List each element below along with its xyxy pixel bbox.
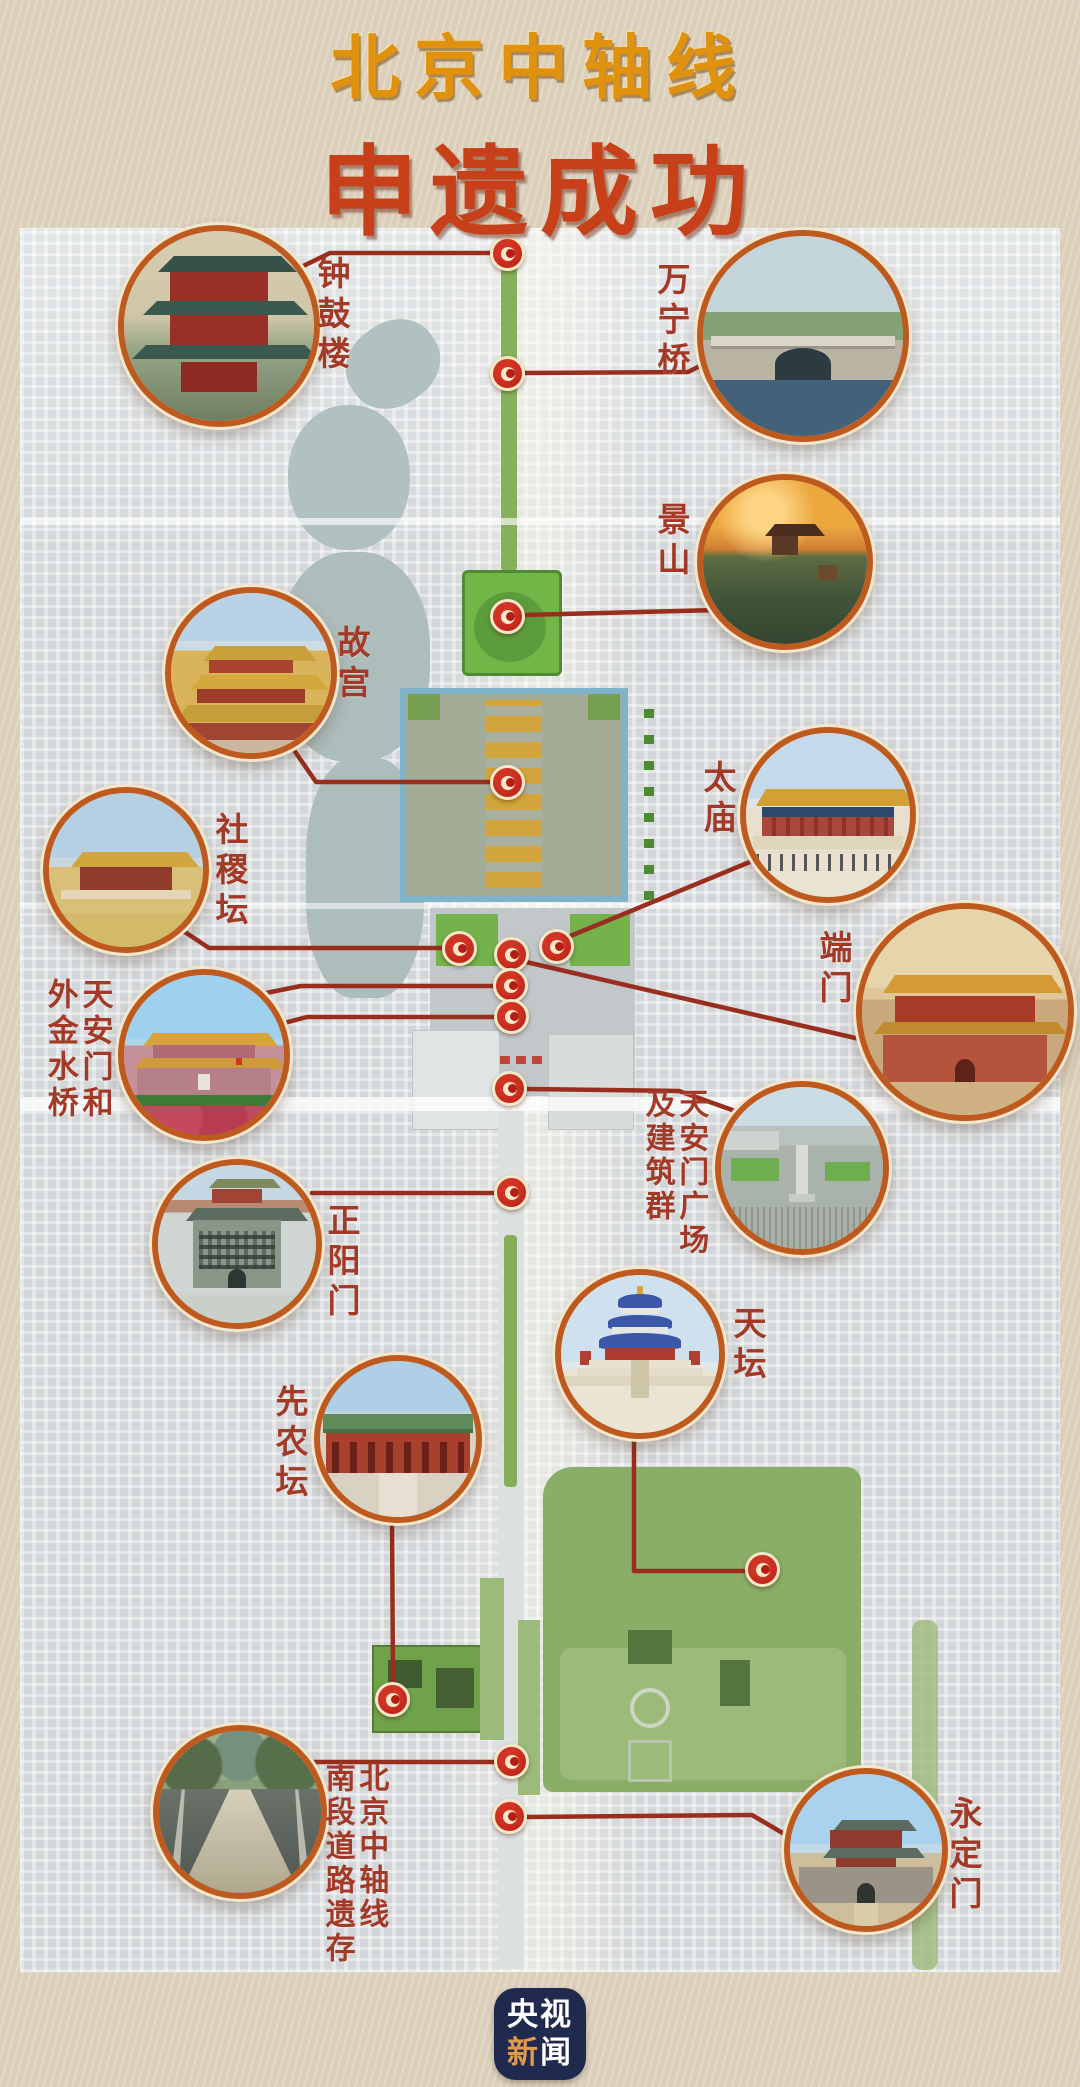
logo-char-xin: 新 — [507, 2035, 540, 2071]
photo-callout-nanduan — [153, 1725, 327, 1899]
photo-detail — [212, 1189, 263, 1203]
photo-detail — [132, 345, 320, 359]
label-jingshan: 景山 — [652, 502, 689, 622]
photo-guangchang — [721, 1087, 883, 1249]
photo-detail — [124, 1106, 284, 1135]
photo-callout-zhengyangmen — [152, 1159, 322, 1329]
photo-detail — [721, 1207, 883, 1249]
label-gugong: 故宫 — [332, 625, 369, 745]
photo-detail — [143, 1033, 278, 1046]
photo-detail — [789, 1194, 815, 1202]
photo-detail — [883, 975, 1064, 993]
photo-detail — [332, 1442, 463, 1473]
photo-detail — [209, 660, 292, 673]
photo-detail — [209, 1179, 282, 1188]
photo-callout-wanningqiao — [697, 230, 909, 442]
poster-title: 北京中轴线 — [0, 12, 1080, 113]
label-tiananmen-waijinshuiqiao: 天安门和 外金水桥 — [42, 978, 111, 1153]
photo-detail — [818, 565, 838, 580]
photo-detail — [756, 854, 900, 870]
map-marker-xiannongtan — [375, 1682, 410, 1717]
photo-jingshan — [703, 480, 867, 644]
photo-detail — [874, 1022, 1067, 1034]
connector-xiannongtan — [392, 1513, 393, 1683]
photo-detail — [833, 1820, 918, 1831]
photo-detail — [631, 1360, 650, 1398]
map-marker-wanningqiao — [490, 356, 525, 391]
photo-detail — [825, 1162, 870, 1181]
photo-gugong — [171, 593, 331, 753]
photo-detail — [198, 1074, 211, 1090]
label-wanningqiao: 万宁桥 — [652, 262, 689, 422]
photo-callout-tiantan — [555, 1269, 725, 1439]
photo-xiannongtan — [320, 1361, 476, 1517]
map-marker-guangchang — [492, 1071, 527, 1106]
photo-detail — [80, 867, 172, 890]
photo-callout-tiananmen-guangchang — [715, 1081, 889, 1255]
photo-zhonggulou — [124, 231, 314, 421]
photo-yongdingmen — [790, 1774, 942, 1926]
label-shejitan: 社稷坛 — [210, 812, 247, 972]
photo-callout-zhonggulou — [118, 225, 320, 427]
photo-detail — [379, 1473, 416, 1517]
title-block: 北京中轴线 申遗成功 — [0, 0, 1080, 255]
photo-detail — [143, 301, 308, 315]
photo-detail — [177, 705, 337, 722]
photo-callout-shejitan — [43, 787, 209, 953]
photo-detail — [228, 1269, 247, 1288]
map-marker-taimiao — [539, 929, 574, 964]
photo-detail — [158, 256, 296, 272]
photo-detail — [762, 817, 893, 837]
photo-detail — [605, 1348, 675, 1361]
photo-detail — [49, 913, 203, 947]
photo-tiantan — [561, 1275, 719, 1433]
photo-detail — [171, 723, 331, 741]
map-marker-nanduan — [494, 1744, 529, 1779]
photo-detail — [618, 1294, 662, 1308]
map-marker-yongdingmen — [492, 1799, 527, 1834]
poster-subtitle: 申遗成功 — [0, 113, 1080, 255]
photo-detail — [756, 789, 914, 806]
cctv-news-logo-bottom: 新闻 — [494, 2034, 586, 2072]
label-taimiao: 太庙 — [698, 760, 735, 880]
photo-detail — [746, 871, 910, 897]
connector-yongdingmen — [527, 1815, 786, 1835]
connector-tiananmen — [256, 986, 495, 995]
photo-shejitan — [49, 793, 203, 947]
logo-char-wen: 闻 — [540, 2035, 573, 2071]
map-marker-tiananmen — [493, 968, 528, 1003]
photo-callout-yongdingmen — [784, 1768, 948, 1932]
photo-wanningqiao — [703, 236, 903, 436]
photo-detail — [181, 362, 257, 392]
photo-taimiao — [746, 733, 910, 897]
label-zhonggulou: 钟鼓楼 — [312, 256, 349, 416]
label-zhengyangmen: 正阳门 — [322, 1203, 359, 1363]
photo-callout-duanmen — [856, 903, 1074, 1121]
photo-detail — [159, 1731, 321, 1789]
photo-detail — [830, 1830, 903, 1848]
photo-detail — [762, 807, 893, 817]
label-nanduan: 北京中轴线 南段道路遗存 — [320, 1762, 387, 1987]
photo-detail — [772, 536, 798, 556]
map-marker-gugong — [490, 765, 525, 800]
beijing-central-axis-poster: 北京中轴线 申遗成功 — [0, 0, 1080, 2087]
map-marker-jingshan — [490, 599, 525, 634]
cctv-news-logo-top: 央视 — [494, 1996, 586, 2034]
photo-callout-taimiao — [740, 727, 916, 903]
photo-detail — [158, 1295, 316, 1323]
photo-tiananmen — [124, 975, 284, 1135]
photo-detail — [199, 1231, 275, 1269]
map-marker-duanmen — [494, 937, 529, 972]
photo-callout-xiannongtan — [314, 1355, 482, 1523]
photo-detail — [61, 890, 190, 899]
photo-detail — [689, 1351, 700, 1365]
map-marker-waijinshuiqiao — [494, 999, 529, 1034]
photo-nanduan — [159, 1731, 321, 1893]
photo-detail — [186, 1208, 307, 1221]
photo-detail — [836, 1858, 897, 1867]
photo-detail — [955, 1059, 976, 1082]
photo-detail — [857, 1883, 875, 1903]
photo-detail — [71, 852, 200, 867]
connector-waijinshuiqiao — [258, 1017, 496, 1030]
photo-detail — [621, 1308, 659, 1314]
map-marker-shejitan — [442, 931, 477, 966]
photo-detail — [203, 646, 317, 661]
photo-detail — [323, 1414, 473, 1433]
photo-detail — [153, 1045, 255, 1058]
photo-detail — [236, 1058, 242, 1064]
photo-detail — [796, 1145, 809, 1195]
photo-detail — [895, 996, 1035, 1023]
photo-duanmen — [862, 909, 1068, 1115]
label-tiantan: 天坛 — [728, 1306, 765, 1426]
label-tiananmen-guangchang: 天安门广场 及建筑群 — [640, 1088, 707, 1288]
label-duanmen: 端门 — [814, 930, 851, 1050]
photo-callout-tiananmen-waijinshuiqiao — [118, 969, 290, 1141]
photo-detail — [711, 336, 895, 346]
photo-detail — [190, 675, 329, 690]
photo-detail — [197, 689, 306, 703]
photo-detail — [731, 1158, 780, 1181]
cctv-news-logo: 央视 新闻 — [494, 1988, 586, 2080]
connector-tiantan — [634, 1427, 747, 1571]
photo-detail — [753, 836, 904, 849]
map-marker-zhengyangmen — [494, 1175, 529, 1210]
photo-zhengyangmen — [158, 1165, 316, 1323]
label-yongdingmen: 永定门 — [944, 1796, 981, 1956]
photo-detail — [854, 1903, 878, 1926]
photo-detail — [724, 1131, 779, 1150]
photo-detail — [765, 524, 824, 536]
photo-callout-jingshan — [697, 474, 873, 650]
photo-callout-gugong — [165, 587, 337, 759]
photo-detail — [775, 348, 831, 380]
photo-detail — [171, 740, 331, 753]
photo-detail — [862, 1082, 1068, 1115]
label-xiannongtan: 先农坛 — [270, 1384, 307, 1544]
map-marker-tiantan — [745, 1552, 780, 1587]
